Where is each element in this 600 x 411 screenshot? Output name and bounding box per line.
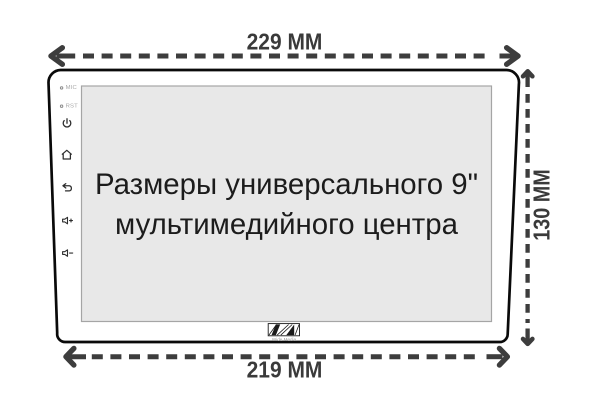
svg-text:MIC: MIC [66,85,78,91]
svg-text:229 ММ: 229 ММ [247,28,323,54]
svg-text:RST: RST [66,104,79,110]
svg-text:219 ММ: 219 ММ [247,356,323,382]
svg-text:Wide Media: Wide Media [272,337,297,342]
svg-text:мультимедийного центра: мультимедийного центра [115,208,459,241]
svg-text:130 ММ: 130 ММ [528,169,555,240]
svg-text:Размеры универсального 9": Размеры универсального 9" [95,168,478,201]
